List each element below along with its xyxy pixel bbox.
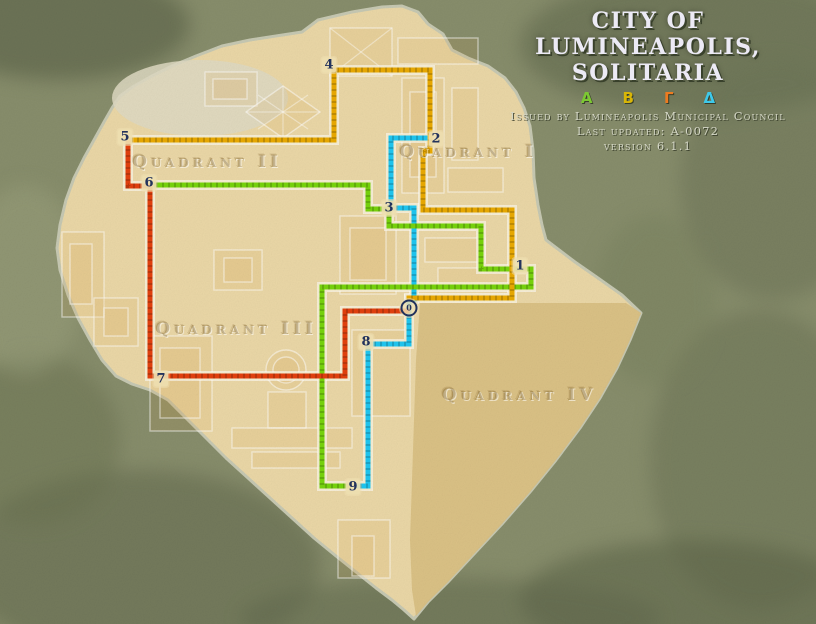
station-1: 1 [513, 259, 527, 274]
quadrant-label-ii: Quadrant II [132, 152, 282, 172]
map-title: CITY OF LUMINEAPOLIS, SOLITARIA [480, 8, 816, 86]
quadrant-label-iii: Quadrant III [155, 319, 317, 339]
station-7: 7 [154, 372, 168, 387]
legend-letter-Δ: Δ [704, 89, 716, 107]
quadrant-label-iv: Quadrant IV [442, 385, 597, 405]
station-4: 4 [322, 58, 336, 73]
transit-line-legend: ΑΒΓΔ [480, 89, 816, 107]
updated-line: Last updated: A-0072 [480, 124, 816, 139]
label-overlay: CITY OF LUMINEAPOLIS, SOLITARIA ΑΒΓΔ Iss… [0, 0, 816, 624]
legend-letter-Α: Α [581, 89, 593, 107]
station-5: 5 [118, 130, 132, 145]
station-2: 2 [429, 132, 443, 147]
issuer-line: Issued by Lumineapolis Municipal Council [480, 109, 816, 124]
station-9: 9 [346, 480, 360, 495]
station-0: 0 [401, 300, 418, 317]
station-6: 6 [142, 176, 156, 191]
city-map: CITY OF LUMINEAPOLIS, SOLITARIA ΑΒΓΔ Iss… [0, 0, 816, 624]
quadrant-label-i: Quadrant I [399, 142, 537, 162]
title-line-2: SOLITARIA [572, 60, 724, 86]
map-title-block: CITY OF LUMINEAPOLIS, SOLITARIA ΑΒΓΔ Iss… [480, 8, 816, 154]
title-line-1: CITY OF LUMINEAPOLIS, [535, 8, 761, 60]
station-8: 8 [359, 335, 373, 350]
legend-letter-Β: Β [623, 89, 634, 107]
legend-letter-Γ: Γ [664, 89, 674, 107]
station-3: 3 [382, 201, 396, 216]
